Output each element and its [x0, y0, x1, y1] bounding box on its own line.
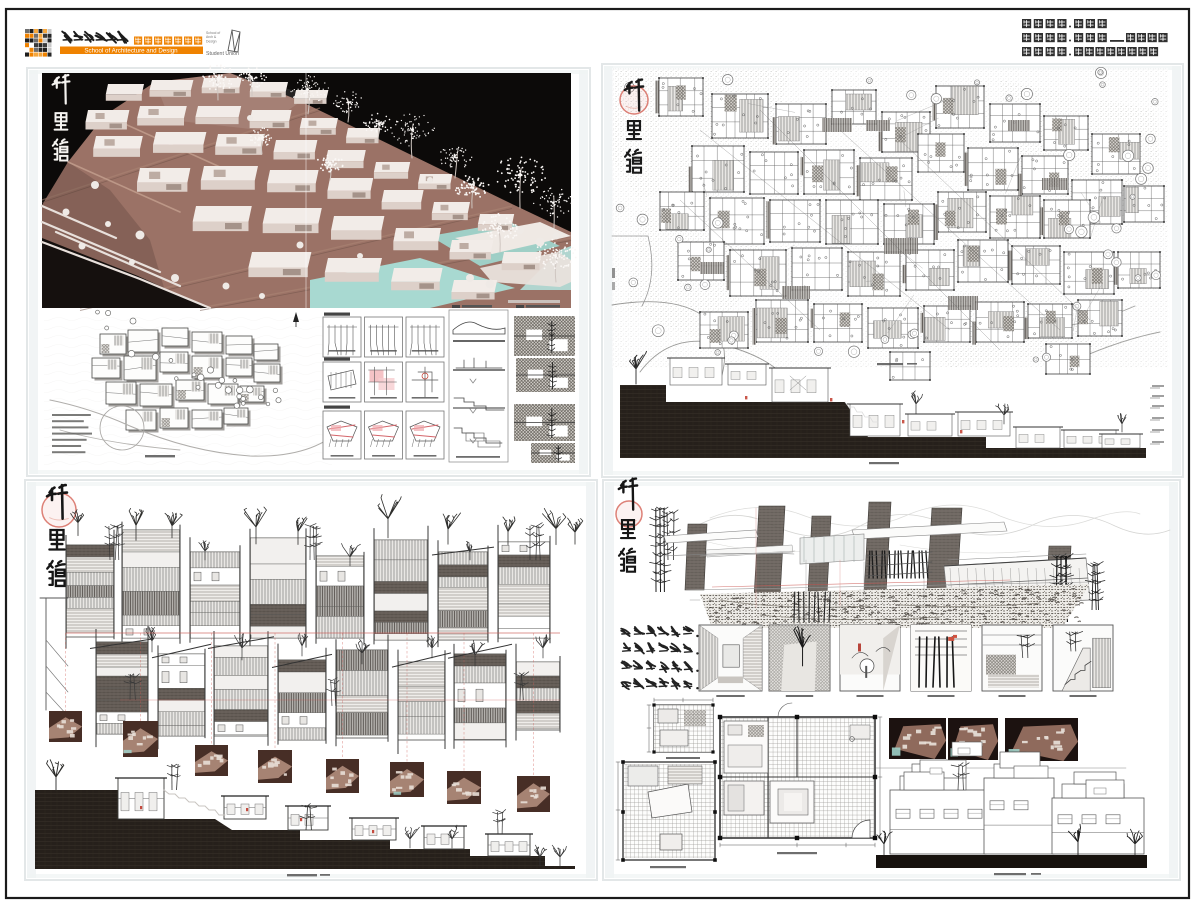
- svg-text:Student Union: Student Union: [206, 51, 239, 57]
- svg-text:Design: Design: [206, 39, 217, 43]
- svg-text:School of Architecture and Des: School of Architecture and Design: [84, 48, 178, 55]
